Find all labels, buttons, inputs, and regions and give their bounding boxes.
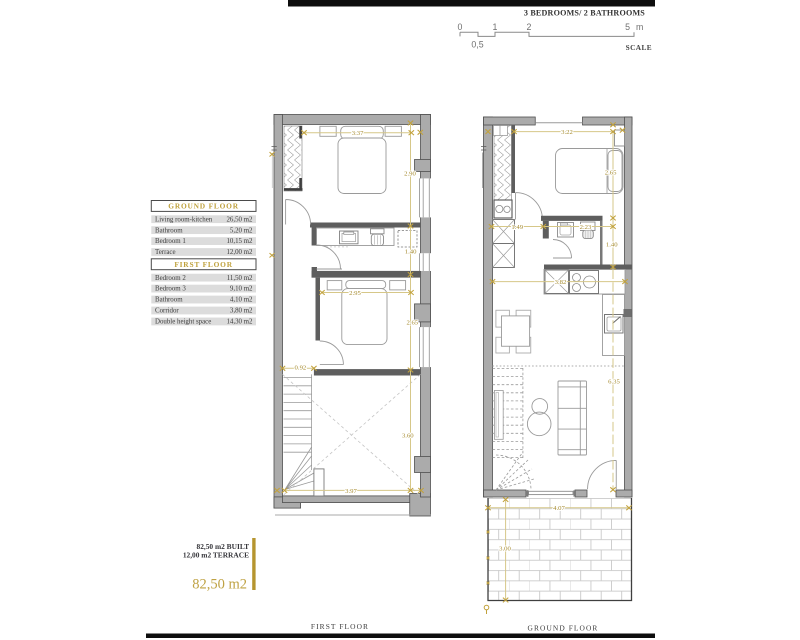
svg-text:Terrace: Terrace (155, 249, 176, 256)
svg-text:5,20 m2: 5,20 m2 (230, 227, 253, 234)
svg-text:1: 1 (493, 22, 498, 32)
svg-text:26,50 m2: 26,50 m2 (226, 216, 253, 223)
svg-text:SCALE: SCALE (626, 43, 652, 52)
svg-text:Bedroom 2: Bedroom 2 (155, 275, 186, 282)
svg-text:2.65: 2.65 (605, 170, 617, 177)
svg-text:0: 0 (458, 22, 463, 32)
svg-text:5: 5 (625, 22, 630, 32)
svg-text:0.92: 0.92 (295, 364, 307, 371)
svg-text:10,15 m2: 10,15 m2 (226, 238, 253, 245)
svg-text:Bathroom: Bathroom (155, 297, 183, 304)
svg-text:Bedroom 3: Bedroom 3 (155, 286, 186, 293)
svg-text:1.40: 1.40 (606, 241, 618, 248)
svg-text:Double height space: Double height space (155, 319, 211, 326)
svg-text:3,80 m2: 3,80 m2 (230, 308, 253, 315)
svg-text:11,50 m2: 11,50 m2 (227, 275, 253, 282)
svg-text:82,50 m2: 82,50 m2 (192, 577, 247, 593)
svg-text:FIRST FLOOR: FIRST FLOOR (174, 260, 233, 269)
svg-text:3.82: 3.82 (555, 279, 567, 286)
svg-text:0,5: 0,5 (471, 40, 483, 50)
svg-text:Bedroom 1: Bedroom 1 (155, 238, 186, 245)
svg-text:3 BEDROOMS/ 2 BATHROOMS: 3 BEDROOMS/ 2 BATHROOMS (524, 9, 645, 18)
svg-text:GROUND FLOOR: GROUND FLOOR (168, 202, 239, 211)
svg-text:GROUND FLOOR: GROUND FLOOR (528, 624, 599, 633)
svg-text:2: 2 (527, 22, 532, 32)
svg-text:m: m (636, 22, 643, 32)
svg-text:14,30 m2: 14,30 m2 (226, 319, 253, 326)
svg-text:3.00: 3.00 (499, 546, 511, 553)
svg-text:3.97: 3.97 (345, 488, 357, 495)
svg-text:12,00 m2 TERRACE: 12,00 m2 TERRACE (183, 551, 249, 560)
svg-text:2.65: 2.65 (406, 319, 418, 326)
svg-text:12,00 m2: 12,00 m2 (226, 249, 253, 256)
svg-text:2.90: 2.90 (404, 171, 416, 178)
svg-text:3.60: 3.60 (402, 433, 414, 440)
svg-text:FIRST FLOOR: FIRST FLOOR (311, 622, 369, 631)
svg-text:9,10 m2: 9,10 m2 (230, 286, 253, 293)
svg-text:3.22: 3.22 (561, 129, 573, 136)
svg-text:Corridor: Corridor (155, 308, 179, 315)
svg-text:6.35: 6.35 (608, 379, 620, 386)
svg-text:Living room-kitchen: Living room-kitchen (155, 216, 213, 223)
svg-text:3.37: 3.37 (352, 130, 364, 137)
svg-text:1.49: 1.49 (511, 224, 523, 231)
svg-text:2.23: 2.23 (580, 224, 592, 231)
svg-text:Bathroom: Bathroom (155, 227, 183, 234)
svg-text:4.07: 4.07 (553, 505, 565, 512)
svg-text:1.40: 1.40 (405, 249, 417, 256)
svg-text:2.95: 2.95 (349, 290, 361, 297)
svg-text:4,10 m2: 4,10 m2 (230, 297, 253, 304)
